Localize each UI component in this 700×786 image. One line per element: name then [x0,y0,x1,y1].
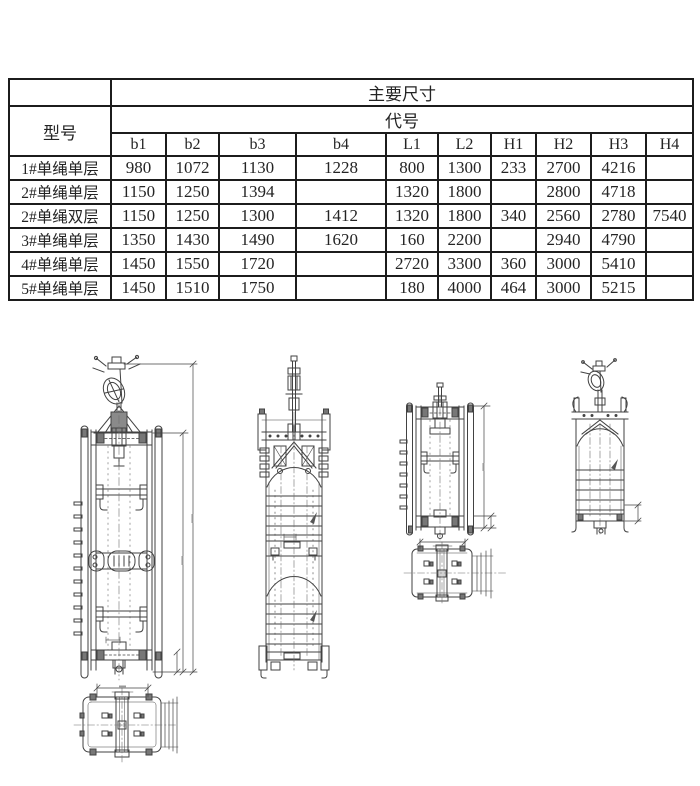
cage-front-view-small [400,383,496,540]
technical-drawings [0,0,700,786]
cage-plan-view-right [404,539,506,605]
cage-plan-view-bottom-left [74,684,178,762]
cage-side-view-double-deck [258,356,330,678]
specification-sheet: 主要尺寸 型号 代号 b1b2b3b4L1L2H1H2H3H4 1#单绳单层98… [0,0,700,786]
rope-hook-icon [93,355,140,407]
dimension-lines [625,502,641,524]
rope-hook-icon [581,359,616,393]
dimension-lines [124,361,197,675]
cage-side-view-short [572,359,641,534]
dimension-lines [94,684,151,697]
dimension-lines [474,403,496,531]
cage-front-view-large [74,355,197,680]
